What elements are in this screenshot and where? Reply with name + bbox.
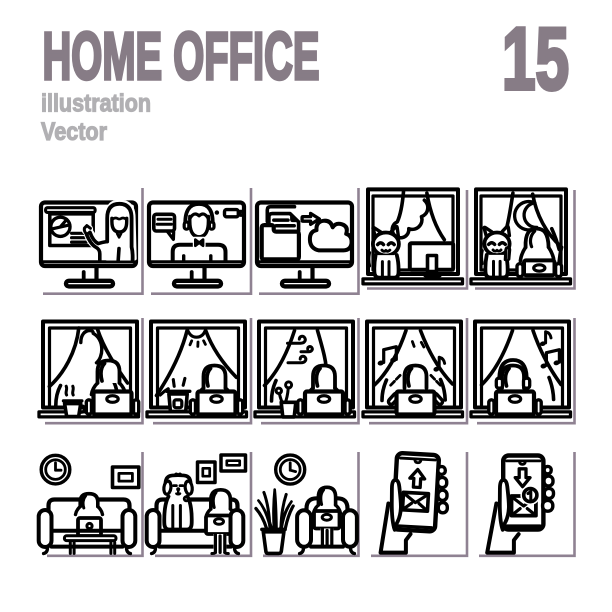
- svg-text:HOME OFFICE: HOME OFFICE: [43, 19, 320, 94]
- svg-text:15: 15: [502, 9, 569, 108]
- svg-text:Vector: Vector: [41, 118, 107, 146]
- svg-text:illustration: illustration: [41, 90, 151, 118]
